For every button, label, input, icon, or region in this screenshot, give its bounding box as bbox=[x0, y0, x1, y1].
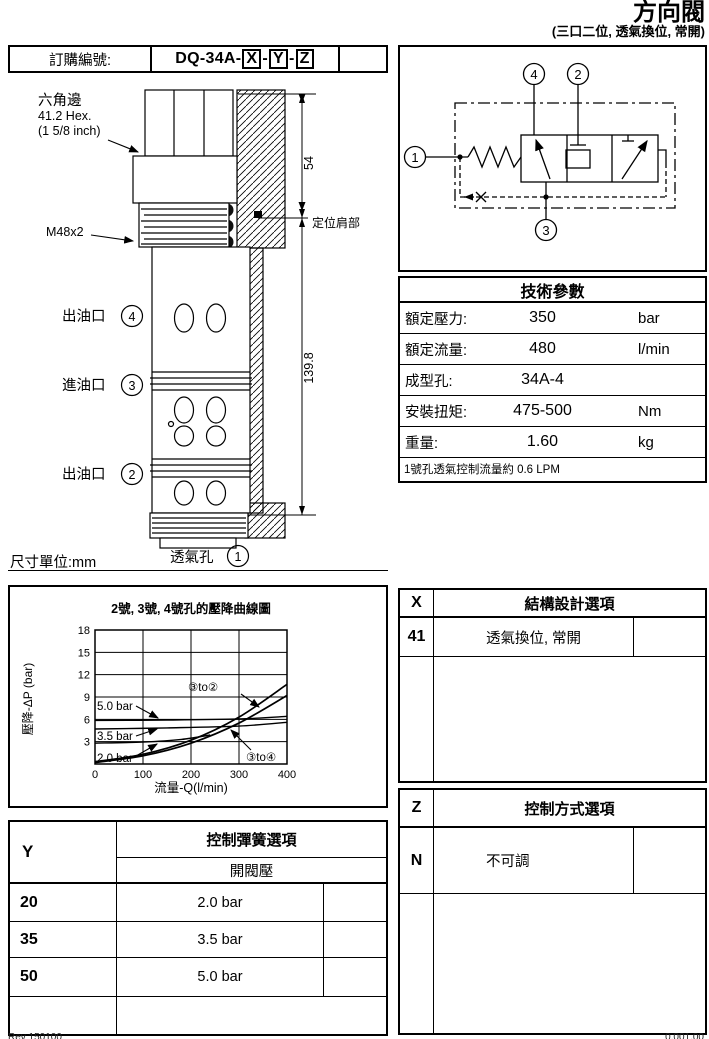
z-row-label: 不可調 bbox=[434, 828, 633, 893]
annotation-arrow bbox=[136, 729, 157, 736]
pressure-drop-chart: 01002003004003691215182號, 3號, 4號孔的壓降曲線圖流… bbox=[8, 585, 388, 808]
tech-unit: kg bbox=[605, 434, 705, 451]
port2-num: 2 bbox=[129, 468, 136, 482]
x-row-code: 41 bbox=[400, 618, 434, 656]
tech-label: 重量: bbox=[400, 432, 480, 453]
table-row: 成型孔: 34A-4 bbox=[400, 365, 705, 396]
model-code-z: Z bbox=[296, 49, 314, 70]
chart-title: 2號, 3號, 4號孔的壓降曲線圖 bbox=[111, 601, 271, 616]
order-model: DQ-34A-X-Y-Z bbox=[150, 47, 340, 71]
x-tick-label: 100 bbox=[134, 769, 152, 781]
tech-value: 475-500 bbox=[480, 402, 605, 420]
annotation-arrow bbox=[231, 730, 251, 750]
doc-title-block: 方向閥 (三口二位, 透氣換位, 常開) bbox=[552, 0, 705, 39]
y-row-label: 2.0 bar bbox=[117, 884, 323, 921]
table-row: 額定壓力: 350 bar bbox=[400, 303, 705, 334]
valve-body bbox=[133, 90, 285, 548]
footer-left-code: Rev 150100 bbox=[8, 1032, 62, 1039]
schematic-symbol bbox=[426, 85, 676, 220]
z-row-empty-cell bbox=[633, 828, 705, 893]
x-options-header: X 結構設計選項 bbox=[400, 590, 705, 618]
order-empty-cell bbox=[340, 47, 386, 71]
x-empty-code-col bbox=[400, 657, 434, 781]
table-row: 41 透氣換位, 常開 bbox=[400, 618, 705, 657]
tech-label: 額定壓力: bbox=[400, 308, 480, 329]
datasheet-page: 方向閥 (三口二位, 透氣換位, 常開) 訂購編號: DQ-34A-X-Y-Z bbox=[0, 0, 709, 1039]
port3-num: 3 bbox=[129, 379, 136, 393]
hex-inch-label: (1 5/8 inch) bbox=[38, 124, 101, 138]
port4-label: 出油口 bbox=[62, 308, 106, 325]
annotation-label: ③to④ bbox=[246, 752, 276, 764]
y-code: Y bbox=[10, 822, 117, 882]
x-tick-label: 200 bbox=[182, 769, 200, 781]
x-code: X bbox=[400, 590, 434, 616]
y-row-label: 3.5 bar bbox=[117, 922, 323, 957]
x-row-empty-cell bbox=[633, 618, 705, 656]
tech-value: 34A-4 bbox=[480, 371, 605, 389]
hex-size-label: 41.2 Hex. bbox=[38, 109, 92, 123]
table-row: 安裝扭矩: 475-500 Nm bbox=[400, 396, 705, 427]
z-empty-label-col bbox=[434, 894, 705, 1033]
dimension-unit-note: 尺寸單位:mm bbox=[10, 551, 96, 572]
valve-drawing-svg: 六角邊 41.2 Hex. (1 5/8 inch) M48x2 出油口 4 進… bbox=[8, 78, 390, 570]
tech-value: 1.60 bbox=[480, 433, 605, 451]
annotation-label: 2.0 bar bbox=[97, 753, 133, 765]
x-options-table: X 結構設計選項 41 透氣換位, 常開 bbox=[398, 588, 707, 783]
model-code-x: X bbox=[242, 49, 261, 70]
table-row: 重量: 1.60 kg bbox=[400, 427, 705, 458]
tech-label: 安裝扭矩: bbox=[400, 401, 480, 422]
y-row-code: 20 bbox=[10, 884, 117, 921]
y-empty-label-col bbox=[117, 997, 386, 1034]
port3-label: 進油口 bbox=[62, 377, 106, 394]
y-row-empty-cell bbox=[323, 884, 386, 921]
z-empty-code-col bbox=[400, 894, 434, 1033]
x-row-label: 透氣換位, 常開 bbox=[434, 618, 633, 656]
annotation-arrow bbox=[136, 706, 158, 718]
leader-lines bbox=[91, 140, 138, 241]
y-tick-label: 3 bbox=[84, 737, 90, 749]
model-prefix: DQ-34A- bbox=[175, 50, 241, 68]
y-tick-label: 6 bbox=[84, 714, 90, 726]
schematic-ports: 1 4 2 3 bbox=[405, 64, 589, 241]
order-number-box: 訂購編號: DQ-34A-X-Y-Z bbox=[8, 45, 388, 73]
y-row-empty-cell bbox=[323, 922, 386, 957]
chart-xlabel: 流量-Q(l/min) bbox=[154, 781, 228, 795]
order-label: 訂購編號: bbox=[10, 47, 150, 71]
thread-label: M48x2 bbox=[46, 225, 84, 239]
y-tick-label: 12 bbox=[78, 670, 90, 682]
y-tick-label: 18 bbox=[78, 625, 90, 637]
x-tick-label: 400 bbox=[278, 769, 296, 781]
dim-54: 54 bbox=[302, 156, 316, 170]
annotation-label: 3.5 bar bbox=[97, 731, 133, 743]
annotation-label: 5.0 bar bbox=[97, 701, 133, 713]
tech-note: 1號孔透氣控制流量約 0.6 LPM bbox=[400, 458, 705, 481]
tech-unit: Nm bbox=[605, 403, 705, 420]
y-tick-label: 9 bbox=[84, 692, 90, 704]
schematic-port1: 1 bbox=[411, 150, 418, 165]
y-row-empty-cell bbox=[323, 958, 386, 996]
z-options-table: Z 控制方式選項 N 不可調 bbox=[398, 788, 707, 1035]
annotation-label: ③to② bbox=[188, 682, 218, 694]
y-options-header: Y 控制彈簧選項 開閥壓 bbox=[10, 822, 386, 884]
z-row-code: N bbox=[400, 828, 434, 893]
x-empty-area bbox=[400, 657, 705, 781]
table-row: N 不可調 bbox=[400, 828, 705, 894]
y-subtitle: 開閥壓 bbox=[117, 858, 386, 882]
tech-value: 480 bbox=[480, 340, 605, 358]
vent-num: 1 bbox=[235, 550, 242, 564]
y-empty-area bbox=[10, 997, 386, 1034]
y-row-label: 5.0 bar bbox=[117, 958, 323, 996]
x-title: 結構設計選項 bbox=[434, 590, 705, 616]
tech-label: 成型孔: bbox=[400, 370, 480, 391]
tech-params-table: 技術參數 額定壓力: 350 bar 額定流量: 480 l/min 成型孔: … bbox=[398, 276, 707, 483]
z-options-header: Z 控制方式選項 bbox=[400, 790, 705, 828]
table-row: 50 5.0 bar bbox=[10, 958, 386, 997]
tech-label: 額定流量: bbox=[400, 339, 480, 360]
chart-ylabel: 壓降-ΔP (bar) bbox=[21, 663, 35, 735]
divider-line bbox=[8, 570, 388, 571]
shoulder-label: 定位肩部 bbox=[312, 215, 360, 230]
y-empty-code-col bbox=[10, 997, 117, 1034]
y-row-code: 35 bbox=[10, 922, 117, 957]
chart-svg: 01002003004003691215182號, 3號, 4號孔的壓降曲線圖流… bbox=[10, 587, 386, 806]
table-row: 額定流量: 480 l/min bbox=[400, 334, 705, 365]
model-code-y: Y bbox=[269, 49, 288, 70]
table-row: 35 3.5 bar bbox=[10, 922, 386, 958]
model-separator: - bbox=[289, 50, 295, 68]
x-tick-label: 300 bbox=[230, 769, 248, 781]
model-separator: - bbox=[262, 50, 268, 68]
z-empty-area bbox=[400, 894, 705, 1033]
y-header-right: 控制彈簧選項 開閥壓 bbox=[117, 822, 386, 882]
port2-label: 出油口 bbox=[62, 466, 106, 483]
y-row-code: 50 bbox=[10, 958, 117, 996]
hex-label: 六角邊 bbox=[38, 92, 82, 109]
tech-unit: bar bbox=[605, 310, 705, 327]
annotation-arrow bbox=[241, 694, 259, 707]
tech-value: 350 bbox=[480, 309, 605, 327]
page-subtitle: (三口二位, 透氣換位, 常開) bbox=[552, 25, 705, 39]
page-title: 方向閥 bbox=[552, 0, 705, 25]
y-title: 控制彈簧選項 bbox=[117, 822, 386, 858]
schematic-svg: 1 4 2 3 bbox=[400, 47, 705, 270]
footer-right-code: 0.001.00 bbox=[600, 1032, 704, 1039]
port4-num: 4 bbox=[129, 310, 136, 324]
x-tick-label: 0 bbox=[92, 769, 98, 781]
table-row: 20 2.0 bar bbox=[10, 884, 386, 922]
z-code: Z bbox=[400, 790, 434, 826]
schematic-port4: 4 bbox=[530, 67, 537, 82]
schematic-box: 1 4 2 3 bbox=[398, 45, 707, 272]
tech-unit: l/min bbox=[605, 341, 705, 358]
tech-table-title: 技術參數 bbox=[400, 278, 705, 303]
valve-drawing: 六角邊 41.2 Hex. (1 5/8 inch) M48x2 出油口 4 進… bbox=[8, 78, 390, 570]
y-tick-label: 15 bbox=[78, 647, 90, 659]
vent-label: 透氣孔 bbox=[170, 549, 214, 566]
schematic-port3: 3 bbox=[542, 223, 549, 238]
y-options-table: Y 控制彈簧選項 開閥壓 20 2.0 bar 35 3.5 bar 50 5.… bbox=[8, 820, 388, 1036]
schematic-port2: 2 bbox=[574, 67, 581, 82]
dim-139-8: 139.8 bbox=[302, 352, 316, 383]
z-title: 控制方式選項 bbox=[434, 790, 705, 826]
x-empty-label-col bbox=[434, 657, 705, 781]
